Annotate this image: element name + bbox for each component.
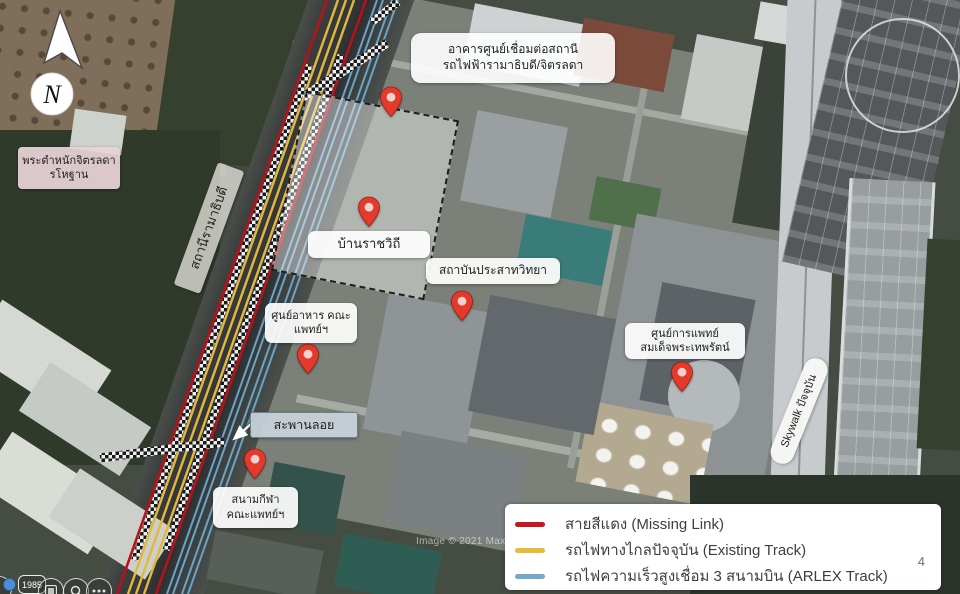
- label-medical-center-line1: ศูนย์การแพทย์: [651, 327, 719, 341]
- more-options-icon: [92, 589, 106, 593]
- map-pin-food-center: [296, 343, 320, 375]
- legend: สายสีแดง (Missing Link) รถไฟทางไกลปัจจุบ…: [505, 504, 941, 590]
- legend-row-arlex-track: รถไฟความเร็วสูงเชื่อม 3 สนามบิน (ARLEX T…: [515, 563, 941, 589]
- north-compass: N: [14, 6, 104, 126]
- label-food-center-line2: แพทย์ฯ: [294, 323, 328, 337]
- search-icon: [70, 585, 83, 594]
- legend-label-existing-track: รถไฟทางไกลปัจจุบัน (Existing Track): [565, 538, 806, 562]
- map-pin-station-link: [379, 86, 403, 118]
- map-pin-stadium: [243, 448, 267, 480]
- legend-swatch-existing-track: [515, 548, 545, 553]
- compass-letter: N: [42, 80, 62, 109]
- legend-label-missing-link: สายสีแดง (Missing Link): [565, 512, 724, 536]
- legend-label-arlex-track: รถไฟความเร็วสูงเชื่อม 3 สนามบิน (ARLEX T…: [565, 564, 888, 588]
- label-pedestrian-bridge: สะพานลอย: [250, 412, 358, 438]
- legend-row-missing-link: สายสีแดง (Missing Link): [515, 511, 941, 537]
- label-neurological-institute: สถาบันประสาทวิทยา: [426, 258, 560, 284]
- page-number: 4: [918, 554, 925, 569]
- label-stadium-line2: คณะแพทย์ฯ: [227, 508, 285, 522]
- map-pin-ban-ratchawithi: [357, 196, 381, 228]
- label-stadium-line1: สนามกีฬา: [231, 493, 279, 507]
- label-ban-ratchawithi-text: บ้านราชวิถี: [338, 236, 401, 253]
- label-ban-ratchawithi: บ้านราชวิถี: [308, 231, 430, 258]
- label-palace-line1: พระตำหนักจิตรลดา: [22, 154, 115, 168]
- globe-icon[interactable]: [3, 578, 16, 591]
- label-medical-center-line2: สมเด็จพระเทพรัตน์: [640, 341, 729, 355]
- slide: พระตำหนักจิตรลดา รโหฐาน อาคารศูนย์เชื่อม…: [0, 0, 960, 594]
- label-medical-center: ศูนย์การแพทย์ สมเด็จพระเทพรัตน์: [625, 323, 745, 359]
- legend-swatch-arlex-track: [515, 574, 545, 579]
- label-food-center: ศูนย์อาหาร คณะ แพทย์ฯ: [265, 303, 357, 343]
- legend-swatch-missing-link: [515, 522, 545, 527]
- label-stadium: สนามกีฬา คณะแพทย์ฯ: [213, 487, 298, 528]
- label-palace-line2: รโหฐาน: [50, 168, 89, 182]
- compass-arrow-icon: [44, 11, 82, 68]
- legend-row-existing-track: รถไฟทางไกลปัจจุบัน (Existing Track): [515, 537, 941, 563]
- label-palace: พระตำหนักจิตรลดา รโหฐาน: [18, 147, 120, 189]
- label-neurological-institute-text: สถาบันประสาทวิทยา: [439, 263, 547, 279]
- label-station-link-line2: รถไฟฟ้ารามาธิบดี/จิตรลดา: [443, 58, 584, 74]
- map-pin-neurological-institute: [450, 290, 474, 322]
- label-station-link-building: อาคารศูนย์เชื่อมต่อสถานี รถไฟฟ้ารามาธิบด…: [411, 33, 615, 83]
- photos-icon: [45, 585, 57, 594]
- label-pedestrian-bridge-text: สะพานลอย: [274, 417, 335, 433]
- map-pin-medical-center: [670, 361, 694, 393]
- label-station-link-line1: อาคารศูนย์เชื่อมต่อสถานี: [448, 42, 578, 58]
- label-food-center-line1: ศูนย์อาหาร คณะ: [271, 309, 351, 323]
